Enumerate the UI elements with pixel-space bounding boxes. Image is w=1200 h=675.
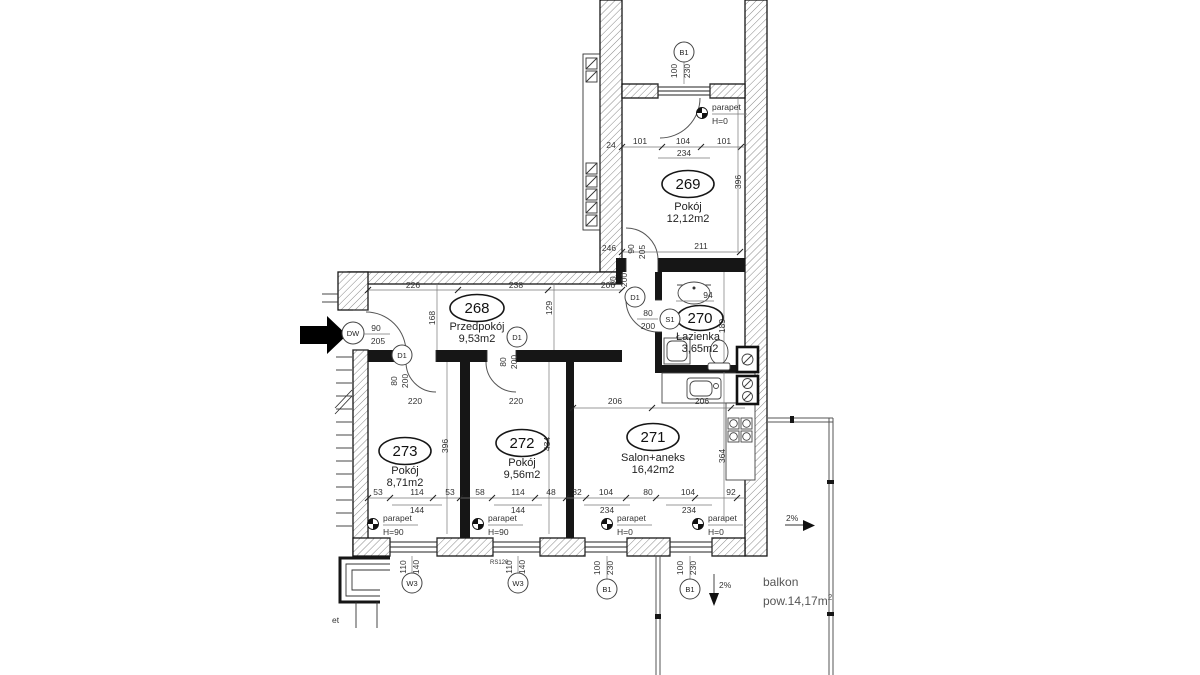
- parapet-salon-1: parapet H=0: [602, 513, 653, 537]
- balcony-area: pow.14,17m2: [763, 593, 833, 608]
- parapet-label: parapet: [617, 513, 646, 523]
- dim-label: 234: [682, 505, 696, 515]
- dim-label: 104: [676, 136, 690, 146]
- dim-label: 80: [498, 357, 508, 367]
- room-name: Pokój: [674, 201, 702, 213]
- marker-dw: DW 90 205: [342, 322, 390, 346]
- room-name: Pokój: [391, 465, 419, 477]
- slope-label: 2%: [719, 580, 732, 590]
- dim-label: 80: [608, 276, 618, 286]
- dim-label: 80: [643, 308, 653, 318]
- dim-label: 100: [592, 561, 602, 575]
- parapet-symbol: [368, 519, 379, 530]
- stair-ticks: [335, 357, 352, 526]
- dim-label: 230: [605, 561, 615, 575]
- parapet-height: H=90: [383, 527, 404, 537]
- marker-code: W3: [512, 579, 523, 588]
- dim-label: 100: [675, 561, 685, 575]
- room-area: 16,42m2: [632, 464, 675, 476]
- loggia-door-b1-top: [658, 84, 710, 98]
- dim-label: 396: [733, 175, 743, 189]
- loggia-door-swing: [660, 98, 700, 138]
- marker-d1-room272: D1 80 200: [498, 327, 527, 369]
- window-w3-2: [493, 538, 540, 556]
- room-number: 273: [392, 443, 417, 460]
- dim-label: 168: [427, 311, 437, 325]
- parapet-height: H=0: [712, 116, 728, 126]
- dim-label: 364: [717, 449, 727, 463]
- marker-s1: 80 200 S1: [637, 308, 680, 331]
- corridor-stub: [322, 294, 338, 302]
- parapet-symbol: [602, 519, 613, 530]
- room-270-label: 270 Łazienka 3,65m2: [676, 306, 723, 356]
- parapet-label: parapet: [383, 513, 412, 523]
- parapet-height: H=0: [617, 527, 633, 537]
- dim-label: 114: [511, 487, 525, 497]
- marker-b1-top: B1 100 230: [669, 42, 694, 78]
- marker-code: DW: [347, 329, 360, 338]
- marker-code: B1: [685, 585, 694, 594]
- marker-code: D1: [397, 351, 407, 360]
- room273-door-swing: [406, 362, 436, 392]
- duct-symbols: [583, 54, 600, 230]
- dim-label: 90: [371, 323, 381, 333]
- parapet-room269: parapet H=0: [697, 102, 748, 126]
- room-area: 8,71m2: [387, 477, 424, 489]
- room-name: Łazienka: [676, 331, 721, 343]
- dim-label: 200: [619, 273, 629, 287]
- marker-d1-room273: D1 80 200: [389, 345, 412, 388]
- dim-label: 200: [509, 355, 519, 369]
- dim-label: 206: [608, 396, 622, 406]
- entrance-arrow: [300, 316, 347, 354]
- dim-label: 234: [677, 148, 691, 158]
- parapet-symbol: [473, 519, 484, 530]
- dim-label: 101: [633, 136, 647, 146]
- marker-code: D1: [630, 293, 640, 302]
- dim-label: 230: [682, 64, 692, 78]
- parapet-label: parapet: [712, 102, 741, 112]
- dim-label: 211: [694, 241, 708, 251]
- dim-label: 140: [411, 560, 421, 574]
- dim-label: 100: [669, 64, 679, 78]
- room-name: Salon+aneks: [621, 452, 685, 464]
- marker-code: W3: [406, 579, 417, 588]
- dim-label: 101: [717, 136, 731, 146]
- floor-plan-drawing: 226 238 206 168 129 101 104 101 234 24 3…: [0, 0, 1200, 675]
- dim-label: 129: [544, 301, 554, 315]
- room-number: 270: [687, 310, 712, 327]
- ventilation-shafts: [737, 347, 758, 404]
- dim-label: 144: [410, 505, 424, 515]
- marker-code: D1: [512, 333, 522, 342]
- dim-label: 205: [371, 336, 385, 346]
- window-w3-1: [390, 538, 437, 556]
- marker-code: B1: [679, 48, 688, 57]
- slope-label: 2%: [786, 513, 799, 523]
- parapet-room273: parapet H=90: [368, 513, 419, 537]
- dim-label: 94: [703, 290, 713, 300]
- marker-code: B1: [602, 585, 611, 594]
- marker-b1-2: B1 100 230: [675, 561, 700, 599]
- room-number: 269: [675, 176, 700, 193]
- balcony-name: balkon: [763, 575, 798, 589]
- dim-label: 200: [400, 374, 410, 388]
- dim-label: 58: [475, 487, 485, 497]
- dim-label: 238: [509, 280, 523, 290]
- dim-label: 206: [695, 396, 709, 406]
- balcony-door-b1-2: [670, 538, 712, 556]
- dim-label: 246: [602, 243, 616, 253]
- shutter-label: RS120: [490, 560, 509, 566]
- dim-label: 53: [373, 487, 383, 497]
- marker-b1-1: B1 100 230: [592, 561, 617, 599]
- dim-label: 80: [643, 487, 653, 497]
- dim-label: 53: [445, 487, 455, 497]
- dim-label: 92: [726, 487, 736, 497]
- slope-down-arrow: 2%: [709, 574, 732, 606]
- room-272-label: 272 Pokój 9,56m2: [496, 430, 548, 482]
- dim-label: 220: [509, 396, 523, 406]
- dim-label: 205: [637, 245, 647, 259]
- room-area: 9,53m2: [459, 333, 496, 345]
- dim-label: 104: [599, 487, 613, 497]
- room-271-label: 271 Salon+aneks 16,42m2: [621, 424, 685, 477]
- dim-label: 230: [688, 561, 698, 575]
- parapet-label: parapet: [488, 513, 517, 523]
- dim-label: 110: [398, 560, 408, 574]
- parapet-label: parapet: [708, 513, 737, 523]
- dim-label: 90: [626, 244, 636, 254]
- room-area: 3,65m2: [682, 343, 719, 355]
- parapet-symbol: [693, 519, 704, 530]
- dim-label: 140: [517, 560, 527, 574]
- dim-label: 104: [681, 487, 695, 497]
- parapet-symbol: [697, 108, 708, 119]
- balcony-door-b1-1: [585, 538, 627, 556]
- dim-label: 226: [406, 280, 420, 290]
- parapet-room272: parapet H=90: [473, 513, 524, 537]
- parapet-salon-2: parapet H=0: [693, 513, 744, 537]
- balcony-label: balkon pow.14,17m2: [763, 575, 833, 608]
- room-name: Pokój: [508, 457, 536, 469]
- room-number: 272: [509, 435, 534, 452]
- room-number: 271: [640, 429, 665, 446]
- room-area: 12,12m2: [667, 213, 710, 225]
- dim-label: 234: [600, 505, 614, 515]
- room-number: 268: [464, 300, 489, 317]
- dim-label: 24: [606, 140, 616, 150]
- slope-right-arrow: 2%: [785, 513, 815, 531]
- room-268-label: 268 Przedpokój 9,53m2: [449, 295, 504, 346]
- room-269-label: 269 Pokój 12,12m2: [662, 171, 714, 226]
- room-area: 9,56m2: [504, 469, 541, 481]
- dim-label: 200: [641, 321, 655, 331]
- parapet-height: H=90: [488, 527, 509, 537]
- floor-plan-page: 226 238 206 168 129 101 104 101 234 24 3…: [0, 0, 1200, 675]
- corner-edge: [340, 558, 390, 628]
- room-273-label: 273 Pokój 8,71m2: [379, 438, 431, 490]
- marker-w3-2: W3 110 140 RS120: [490, 560, 528, 593]
- dim-label: 48: [546, 487, 556, 497]
- marker-w3-1: W3 110 140: [398, 560, 422, 593]
- marker-code: S1: [665, 315, 674, 324]
- dim-label: 32: [572, 487, 582, 497]
- clipped-label: et: [332, 615, 340, 625]
- dim-label: 80: [389, 376, 399, 386]
- dim-label: 220: [408, 396, 422, 406]
- dim-label: 396: [440, 439, 450, 453]
- parapet-height: H=0: [708, 527, 724, 537]
- room-name: Przedpokój: [449, 321, 504, 333]
